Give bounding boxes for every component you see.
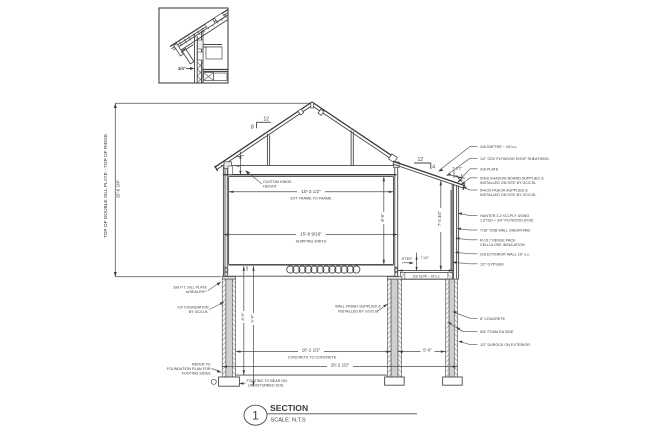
svg-text:7/16" OSB WALL SHEATHING: 7/16" OSB WALL SHEATHING	[480, 229, 530, 233]
svg-text:5/8" FOAM EA SIDE: 5/8" FOAM EA SIDE	[480, 330, 514, 334]
svg-text:16'-2 1/2": 16'-2 1/2"	[302, 347, 321, 352]
svg-text:3/4": 3/4"	[178, 66, 186, 71]
svg-text:5/4x6 SHADOW BOARD SUPPLIED &: 5/4x6 SHADOW BOARD SUPPLIED &	[480, 176, 544, 180]
svg-text:7 1/2": 7 1/2"	[421, 256, 429, 260]
svg-text:SHIPPING WIDTH: SHIPPING WIDTH	[296, 239, 327, 243]
svg-text:20'-2 1/2": 20'-2 1/2"	[331, 362, 350, 367]
svg-text:1/2" GYPSUM: 1/2" GYPSUM	[480, 262, 503, 266]
svg-text:BY GC/O.B.: BY GC/O.B.	[189, 310, 209, 314]
svg-text:15'-8 9/16": 15'-8 9/16"	[300, 232, 322, 237]
svg-text:2x8: 2x8	[245, 266, 249, 271]
svg-text:TOP OF DOUBLE SILL PLATE - TOP: TOP OF DOUBLE SILL PLATE - TOP OF RIDGE	[103, 134, 109, 238]
svg-text:9'-6": 9'-6"	[250, 314, 255, 323]
svg-text:10'-3 1/2": 10'-3 1/2"	[301, 189, 321, 194]
svg-text:2x6 RAFTER ~ 16"o.c.: 2x6 RAFTER ~ 16"o.c.	[480, 145, 517, 149]
svg-text:CONCRETE TO CONCRETE: CONCRETE TO CONCRETE	[288, 355, 337, 359]
svg-text:FOUNDATION PLAN FOR: FOUNDATION PLAN FOR	[167, 367, 211, 371]
svg-text:INSTALLED BY GC/O.B.: INSTALLED BY GC/O.B.	[338, 310, 379, 314]
svg-text:1: 1	[252, 409, 259, 423]
svg-text:HEIGHT: HEIGHT	[263, 184, 278, 188]
svg-text:15'-6 1/4": 15'-6 1/4"	[116, 179, 121, 198]
svg-text:WALL FINISH SUPPLIED &: WALL FINISH SUPPLIED &	[335, 305, 381, 309]
svg-text:7 1/2": 7 1/2"	[452, 165, 463, 170]
svg-text:5/4x10 FASCIA SUPPLIED &: 5/4x10 FASCIA SUPPLIED &	[480, 189, 528, 193]
svg-text:w/SEALER**: w/SEALER**	[186, 290, 208, 294]
svg-text:1.5"ISO + 3/4" PLYWOOD (R10): 1.5"ISO + 3/4" PLYWOOD (R10)	[480, 219, 533, 223]
svg-text:INSTALLED ON SITE BY GC/CSL: INSTALLED ON SITE BY GC/CSL	[480, 181, 536, 185]
svg-text:ICF FOUNDATION: ICF FOUNDATION	[177, 306, 208, 310]
svg-text:8'-6": 8'-6"	[240, 312, 245, 321]
svg-text:STEP: STEP	[402, 256, 413, 261]
svg-text:8'-6": 8'-6"	[380, 213, 385, 222]
svg-text:CELLULOSE INSULATION: CELLULOSE INSULATION	[480, 243, 525, 247]
svg-text:1/2" CDX PLYWOOD ROOF SHEATHIN: 1/2" CDX PLYWOOD ROOF SHEATHING	[480, 157, 549, 161]
svg-text:EXT FRAME TO FRAME: EXT FRAME TO FRAME	[291, 196, 333, 200]
svg-text:1/2" DUROCK ON EXTERIOR: 1/2" DUROCK ON EXTERIOR	[480, 343, 530, 347]
svg-text:2x6 SLPR ~ 16"o.c.: 2x6 SLPR ~ 16"o.c.	[413, 275, 441, 279]
svg-text:12: 12	[264, 117, 270, 123]
svg-text:12: 12	[418, 157, 424, 163]
svg-text:3x8 P.T. SILL PLATE: 3x8 P.T. SILL PLATE	[173, 286, 207, 290]
svg-text:8: 8	[251, 125, 254, 131]
svg-text:8" CONCRETE: 8" CONCRETE	[480, 317, 506, 321]
svg-text:HUNTER 3.2 XCI-PLY USING: HUNTER 3.2 XCI-PLY USING	[480, 214, 529, 218]
svg-text:FOOTING TO BEAR ON: FOOTING TO BEAR ON	[247, 379, 288, 383]
svg-text:FOOTING SIDES: FOOTING SIDES	[182, 371, 211, 375]
svg-text:4: 4	[432, 165, 435, 171]
svg-text:R-15.7 DENSE PACK: R-15.7 DENSE PACK	[480, 238, 516, 242]
svg-text:UNDISTURBED SOIL: UNDISTURBED SOIL	[248, 383, 284, 387]
svg-text:2x6 PLATE: 2x6 PLATE	[480, 167, 499, 171]
svg-text:5'-0": 5'-0"	[423, 347, 432, 352]
svg-text:REFER TO: REFER TO	[192, 362, 211, 366]
svg-text:2x6 EXTERIOR WALL 16" o.c.: 2x6 EXTERIOR WALL 16" o.c.	[480, 252, 530, 256]
svg-text:SECTION: SECTION	[270, 403, 308, 413]
svg-text:7'-4 3/4": 7'-4 3/4"	[437, 210, 442, 226]
svg-text:INSTALLED ON SITE BY GC/CSL: INSTALLED ON SITE BY GC/CSL	[480, 193, 536, 197]
svg-text:SCALE: N.T.S: SCALE: N.T.S	[271, 417, 306, 423]
